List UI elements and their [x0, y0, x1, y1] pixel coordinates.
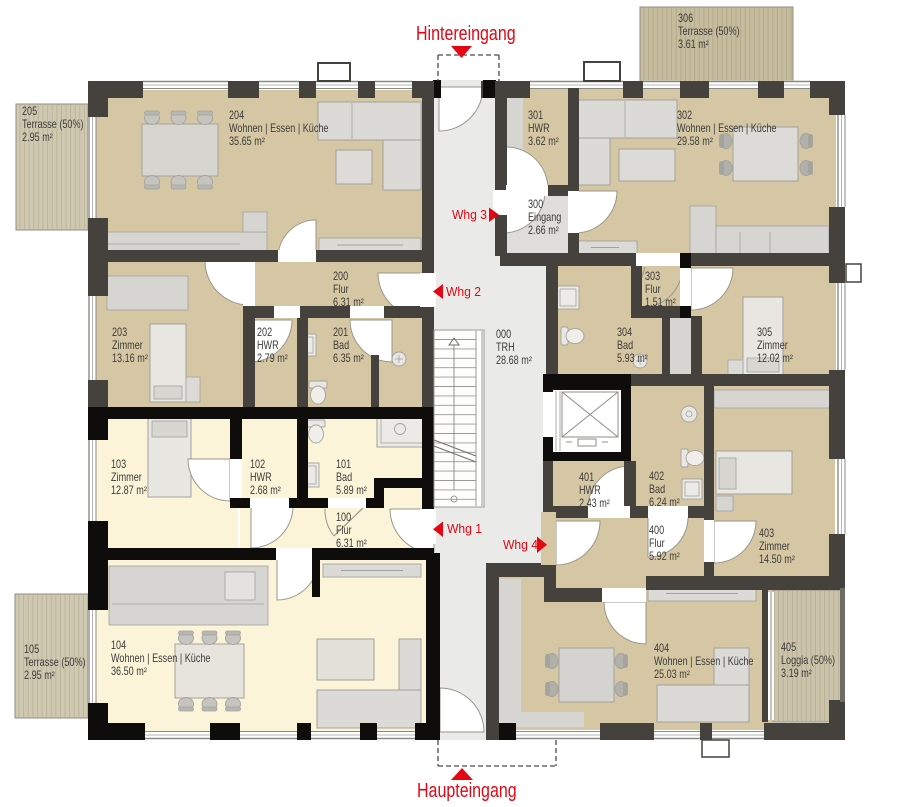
svg-text:2.95 m²: 2.95 m²	[22, 132, 53, 144]
svg-text:Bad: Bad	[336, 472, 352, 484]
svg-text:101: 101	[336, 459, 351, 471]
svg-text:104: 104	[111, 640, 126, 652]
svg-text:303: 303	[645, 271, 660, 283]
svg-text:Wohnen | Essen | Küche: Wohnen | Essen | Küche	[111, 653, 211, 665]
svg-text:Terrasse (50%): Terrasse (50%)	[22, 119, 84, 131]
svg-text:100: 100	[336, 512, 351, 524]
svg-text:12.87 m²: 12.87 m²	[111, 485, 147, 497]
svg-text:Flur: Flur	[333, 284, 349, 296]
svg-text:29.58 m²: 29.58 m²	[677, 136, 713, 148]
svg-text:403: 403	[759, 528, 774, 540]
svg-text:400: 400	[649, 525, 664, 537]
svg-text:2.66 m²: 2.66 m²	[528, 225, 559, 237]
svg-text:35.65 m²: 35.65 m²	[229, 136, 265, 148]
svg-text:HWR: HWR	[528, 123, 550, 135]
svg-text:Haupteingang: Haupteingang	[417, 779, 517, 801]
svg-text:105: 105	[24, 644, 39, 656]
svg-text:Loggia (50%): Loggia (50%)	[781, 655, 835, 667]
svg-text:204: 204	[229, 110, 244, 122]
svg-text:302: 302	[677, 110, 692, 122]
svg-text:301: 301	[528, 110, 543, 122]
svg-text:Terrasse (50%): Terrasse (50%)	[678, 26, 740, 38]
svg-text:36.50 m²: 36.50 m²	[111, 666, 147, 678]
svg-text:6.31 m²: 6.31 m²	[336, 538, 367, 550]
svg-text:202: 202	[257, 327, 272, 339]
svg-text:Whg 3: Whg 3	[452, 208, 487, 222]
svg-text:3.19 m²: 3.19 m²	[781, 668, 812, 680]
svg-text:Flur: Flur	[649, 538, 665, 550]
svg-text:1.51 m²: 1.51 m²	[645, 297, 676, 309]
svg-text:Wohnen | Essen | Küche: Wohnen | Essen | Küche	[229, 123, 329, 135]
svg-text:Terrasse (50%): Terrasse (50%)	[24, 657, 86, 669]
svg-text:Eingang: Eingang	[528, 212, 562, 224]
svg-text:2.95 m²: 2.95 m²	[24, 670, 55, 682]
svg-text:304: 304	[617, 327, 632, 339]
svg-text:Zimmer: Zimmer	[759, 541, 790, 553]
svg-text:305: 305	[757, 327, 772, 339]
svg-text:404: 404	[654, 643, 669, 655]
svg-text:5.93 m²: 5.93 m²	[617, 353, 648, 365]
svg-text:402: 402	[649, 471, 664, 483]
svg-text:Flur: Flur	[645, 284, 661, 296]
svg-text:Whg 4: Whg 4	[503, 538, 538, 552]
svg-text:Bad: Bad	[649, 484, 665, 496]
svg-text:Zimmer: Zimmer	[112, 340, 143, 352]
svg-text:2.68 m²: 2.68 m²	[250, 485, 281, 497]
svg-text:306: 306	[678, 13, 693, 25]
svg-text:14.50 m²: 14.50 m²	[759, 554, 795, 566]
svg-text:2.79 m²: 2.79 m²	[257, 353, 288, 365]
svg-text:103: 103	[111, 459, 126, 471]
svg-text:12.02 m²: 12.02 m²	[757, 353, 793, 365]
svg-text:Bad: Bad	[333, 340, 349, 352]
svg-text:102: 102	[250, 459, 265, 471]
svg-text:5.92 m²: 5.92 m²	[649, 551, 680, 563]
svg-text:Zimmer: Zimmer	[111, 472, 142, 484]
svg-text:6.24 m²: 6.24 m²	[649, 497, 680, 509]
svg-text:401: 401	[579, 472, 594, 484]
svg-text:5.89 m²: 5.89 m²	[336, 485, 367, 497]
svg-text:Zimmer: Zimmer	[757, 340, 788, 352]
svg-text:TRH: TRH	[496, 342, 515, 354]
svg-text:6.35 m²: 6.35 m²	[333, 353, 364, 365]
svg-text:28.68 m²: 28.68 m²	[496, 355, 532, 367]
svg-text:Bad: Bad	[617, 340, 633, 352]
svg-text:3.61 m²: 3.61 m²	[678, 39, 709, 51]
svg-text:201: 201	[333, 327, 348, 339]
svg-text:3.62 m²: 3.62 m²	[528, 136, 559, 148]
svg-text:000: 000	[496, 329, 511, 341]
svg-text:203: 203	[112, 327, 127, 339]
svg-text:205: 205	[22, 106, 37, 118]
svg-text:300: 300	[528, 199, 543, 211]
svg-text:Wohnen | Essen | Küche: Wohnen | Essen | Küche	[654, 656, 754, 668]
svg-text:200: 200	[333, 271, 348, 283]
svg-text:Wohnen | Essen | Küche: Wohnen | Essen | Küche	[677, 123, 777, 135]
svg-text:Flur: Flur	[336, 525, 352, 537]
svg-text:25.03 m²: 25.03 m²	[654, 669, 690, 681]
svg-text:2.43 m²: 2.43 m²	[579, 498, 610, 510]
svg-text:HWR: HWR	[257, 340, 279, 352]
svg-text:Whg 2: Whg 2	[446, 285, 481, 299]
svg-text:HWR: HWR	[579, 485, 601, 497]
svg-text:HWR: HWR	[250, 472, 272, 484]
svg-text:Whg 1: Whg 1	[447, 522, 482, 536]
svg-text:13.16 m²: 13.16 m²	[112, 353, 148, 365]
svg-text:6.31 m²: 6.31 m²	[333, 297, 364, 309]
svg-text:405: 405	[781, 642, 796, 654]
svg-text:Hintereingang: Hintereingang	[416, 22, 516, 44]
